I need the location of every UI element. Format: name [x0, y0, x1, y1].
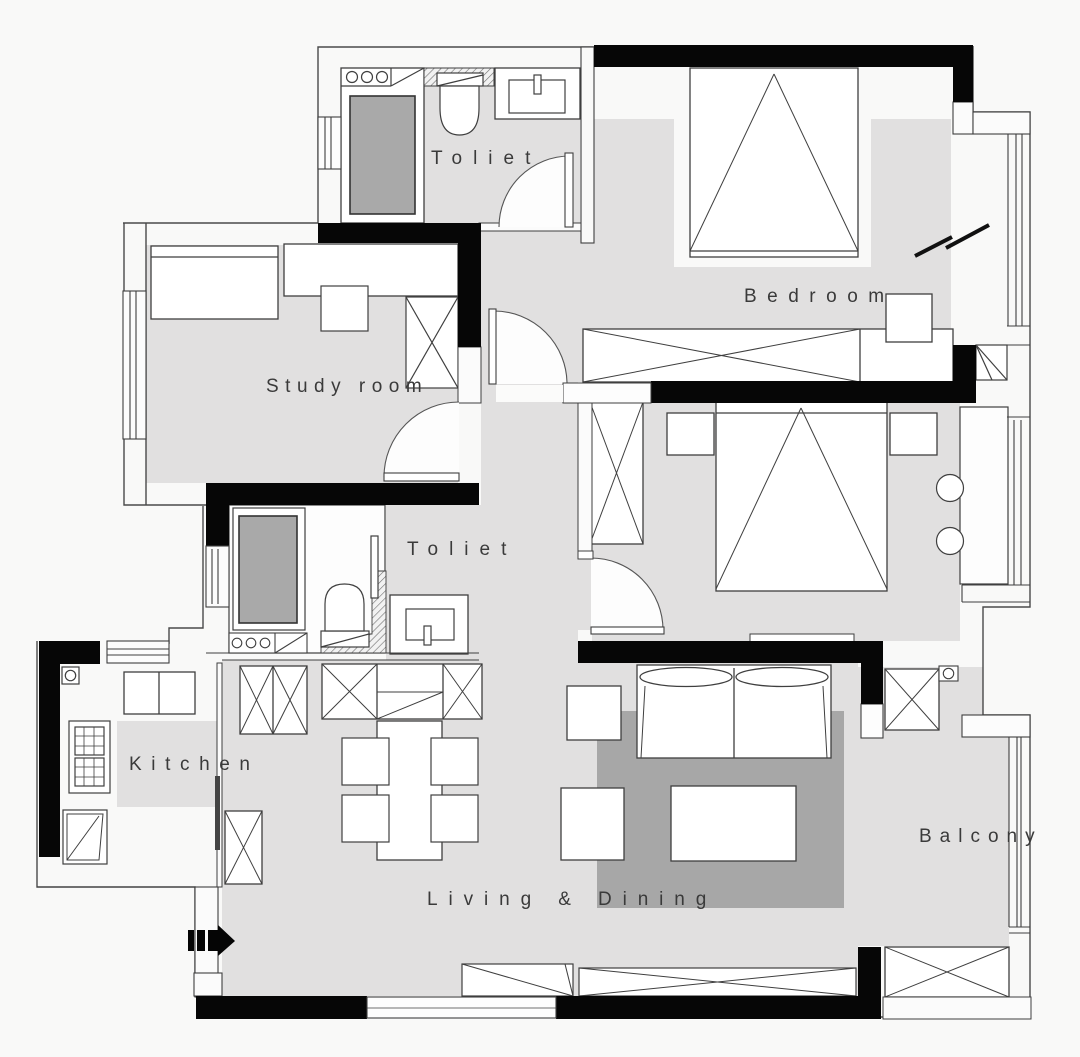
- svg-text:Study room: Study room: [266, 376, 428, 397]
- svg-text:Toliet: Toliet: [431, 148, 541, 169]
- svg-text:Balcony: Balcony: [919, 826, 1043, 847]
- svg-text:Toliet: Toliet: [407, 539, 517, 560]
- svg-text:Living & Dining: Living & Dining: [427, 889, 717, 910]
- svg-text:Bedroom: Bedroom: [744, 286, 895, 307]
- svg-text:Kitchen: Kitchen: [129, 754, 260, 775]
